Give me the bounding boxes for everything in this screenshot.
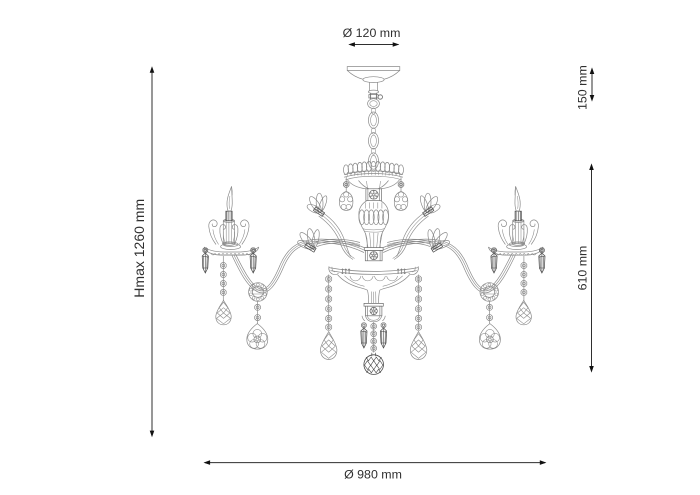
svg-text:Ø 120 mm: Ø 120 mm xyxy=(343,26,401,40)
svg-text:150 mm: 150 mm xyxy=(576,65,590,110)
svg-text:610 mm: 610 mm xyxy=(576,246,590,291)
svg-text:Ø 980 mm: Ø 980 mm xyxy=(344,468,402,482)
svg-text:Hmax 1260 mm: Hmax 1260 mm xyxy=(131,199,147,298)
